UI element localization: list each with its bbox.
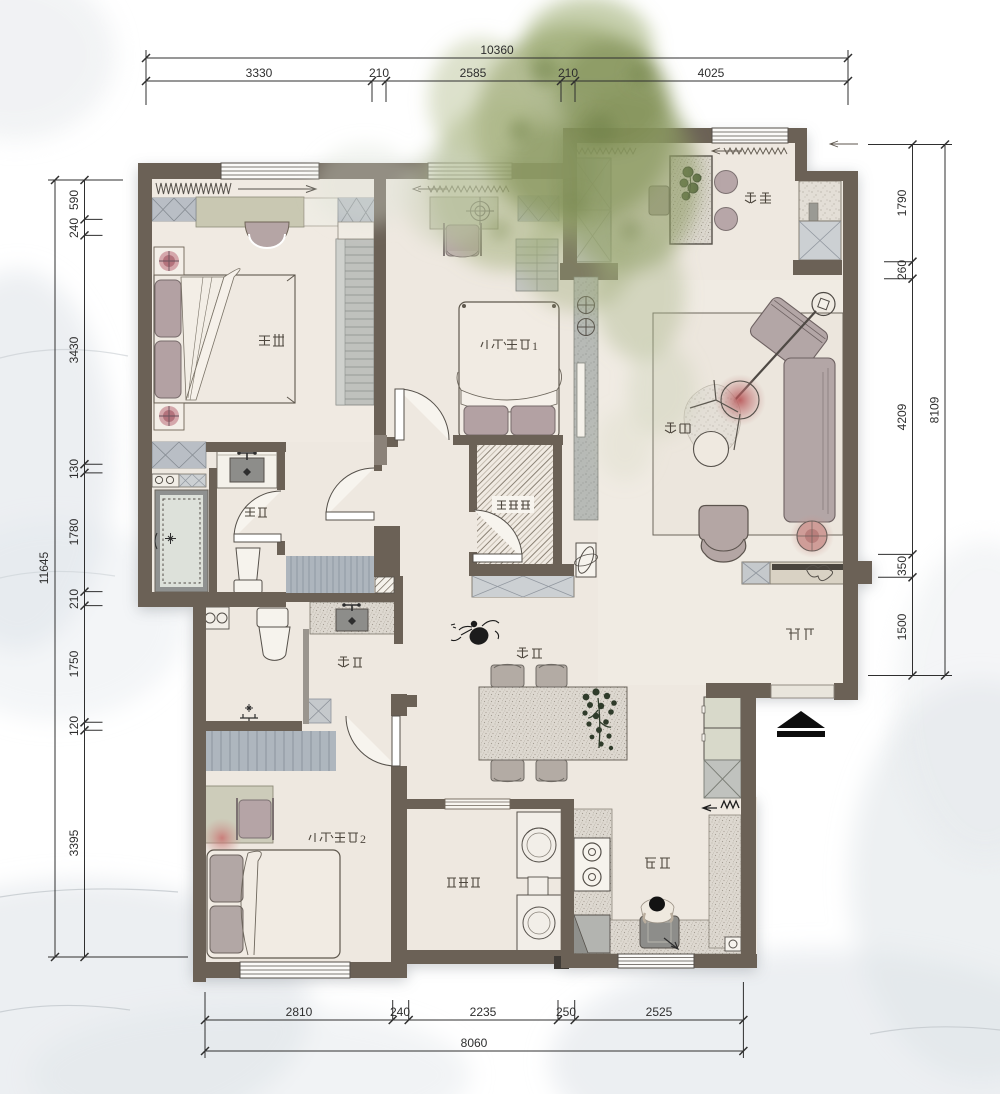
svg-text:2235: 2235 xyxy=(470,1005,497,1019)
svg-text:260: 260 xyxy=(895,260,909,280)
svg-text:10360: 10360 xyxy=(480,43,514,57)
svg-text:590: 590 xyxy=(67,190,81,210)
svg-text:2810: 2810 xyxy=(286,1005,313,1019)
svg-text:1780: 1780 xyxy=(67,518,81,545)
svg-text:250: 250 xyxy=(556,1005,576,1019)
svg-text:120: 120 xyxy=(67,716,81,736)
svg-text:3430: 3430 xyxy=(67,336,81,363)
svg-text:1500: 1500 xyxy=(895,613,909,640)
svg-text:4209: 4209 xyxy=(895,403,909,430)
svg-text:1: 1 xyxy=(532,339,538,353)
svg-text:210: 210 xyxy=(558,66,578,80)
svg-text:1790: 1790 xyxy=(895,189,909,216)
svg-text:1750: 1750 xyxy=(67,650,81,677)
svg-text:350: 350 xyxy=(895,556,909,576)
svg-text:2585: 2585 xyxy=(460,66,487,80)
svg-text:240: 240 xyxy=(390,1005,410,1019)
svg-text:8109: 8109 xyxy=(928,396,942,423)
svg-text:2525: 2525 xyxy=(646,1005,673,1019)
svg-text:3330: 3330 xyxy=(246,66,273,80)
svg-text:8060: 8060 xyxy=(461,1036,488,1050)
svg-text:11645: 11645 xyxy=(37,551,51,584)
svg-text:240: 240 xyxy=(67,218,81,238)
svg-text:3395: 3395 xyxy=(67,829,81,856)
svg-text:210: 210 xyxy=(369,66,389,80)
svg-text:130: 130 xyxy=(67,459,81,479)
svg-text:4025: 4025 xyxy=(698,66,725,80)
svg-text:2: 2 xyxy=(360,832,366,846)
svg-text:210: 210 xyxy=(67,589,81,609)
